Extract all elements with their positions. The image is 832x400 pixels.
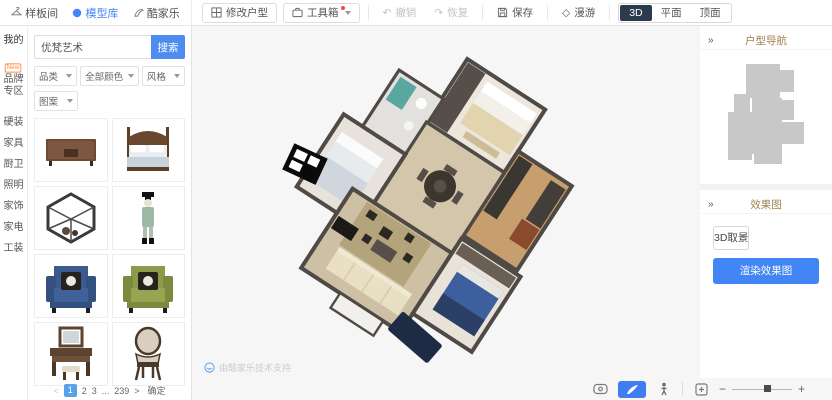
rail-item-appliances[interactable]: 家电 [2, 222, 26, 234]
product-tile-bed[interactable] [112, 118, 186, 182]
floorplan-nav-card: » 户型导航 [700, 26, 832, 184]
page-button-2[interactable]: 2 [82, 386, 87, 396]
brush-mode-button[interactable] [618, 381, 646, 398]
pagination: < 1 2 3 ... 239 > 确定 [28, 384, 191, 397]
guide-button[interactable] [590, 381, 610, 397]
tab-kujiale[interactable]: 酷家乐 [133, 5, 180, 21]
rail-item-commercial[interactable]: 工装 [2, 243, 26, 255]
brush-icon [626, 384, 639, 395]
tab-label: 酷家乐 [147, 5, 180, 21]
toolbox-new-badge [341, 6, 345, 10]
render-image-button[interactable]: 渲染效果图 [713, 258, 819, 284]
minimap-room [754, 154, 782, 164]
minimap-room [746, 64, 780, 98]
pattern-filter-select[interactable]: 图案 [34, 91, 78, 111]
undo-icon: ↶ [383, 7, 392, 19]
tab-label: 样板间 [25, 5, 58, 21]
bird-icon [133, 7, 144, 18]
floorplan-grid-icon [211, 7, 222, 18]
four-poster-bed-image [117, 123, 179, 177]
view-mode-label: 3D [629, 7, 642, 19]
upholstered-chair-image [128, 326, 168, 382]
filter-label: 图案 [39, 94, 58, 108]
next-page-button[interactable]: > [134, 386, 139, 396]
rail-item-home-decor[interactable]: 家饰 [2, 201, 26, 213]
tv-cabinet-image [40, 125, 102, 175]
style-filter-select[interactable]: 风格 [142, 66, 185, 86]
view-mode-label: 顶面 [700, 5, 721, 20]
tab-sample-rooms[interactable]: 样板间 [11, 5, 58, 21]
roam-diamond-icon: ◇ [562, 7, 570, 19]
render-card: » 效果图 3D取景 渲染效果图 [700, 190, 832, 378]
roam-button[interactable]: ◇ 漫游 [556, 3, 601, 23]
view-mode-plan[interactable]: 平面 [652, 5, 691, 21]
toolbox-icon [292, 7, 303, 18]
chevron-down-icon [345, 11, 351, 15]
redo-icon: ↷ [434, 7, 443, 19]
color-filter-select[interactable]: 全部颜色 [80, 66, 139, 86]
floorplan-nav-header: » 户型导航 [700, 32, 832, 50]
filter-row-1: 品类 全部颜色 风格 [34, 66, 185, 86]
kujiale-smiley-icon [204, 362, 215, 373]
tab-model-library[interactable]: 模型库 [72, 5, 118, 21]
product-tile-green-armchair[interactable] [112, 254, 186, 318]
canvas-bottom-toolbar: − + [586, 378, 832, 400]
dressing-table-image [42, 326, 100, 382]
page-confirm-button[interactable]: 确定 [148, 384, 166, 397]
floorplan-nav-title: 户型导航 [745, 35, 787, 47]
floorplan-minimap[interactable] [716, 60, 816, 172]
watermark-text: 由酷家乐技术支持 [219, 361, 291, 374]
minimap-room [728, 112, 752, 160]
filter-label: 品类 [39, 69, 58, 83]
save-label: 保存 [512, 5, 533, 20]
toolbar-divider [609, 5, 610, 20]
collapse-icon[interactable]: » [708, 32, 713, 50]
prev-page-button[interactable]: < [53, 386, 58, 396]
green-armchair-image [119, 258, 177, 314]
render-title: 效果图 [750, 199, 782, 211]
filter-label: 全部颜色 [85, 69, 123, 83]
page-button-last[interactable]: 239 [114, 386, 129, 396]
toolbar-divider [368, 5, 369, 20]
minimap-room [776, 122, 804, 144]
product-tile-upholstered-chair[interactable] [112, 322, 186, 386]
3d-capture-button[interactable]: 3D取景 [713, 226, 749, 250]
product-tile-blue-armchair[interactable] [34, 254, 108, 318]
page-button-1[interactable]: 1 [64, 384, 77, 397]
top-bar: 样板间 模型库 酷家乐 修改户型 工具箱 ↶ 撤销 ↷ 恢复 [0, 0, 832, 26]
view-mode-ceiling[interactable]: 顶面 [691, 5, 730, 21]
frame-plus-icon [695, 383, 708, 396]
guide-icon [593, 383, 608, 395]
product-grid [34, 118, 185, 386]
design-canvas[interactable]: 由酷家乐技术支持 [192, 26, 700, 400]
model-library-panel: 搜索 品类 全部颜色 风格 图案 [28, 26, 192, 400]
rail-item-label: 品牌专区 [4, 74, 24, 97]
frame-capture-button[interactable] [691, 381, 711, 397]
chevron-down-icon [128, 74, 134, 78]
chevron-down-icon [67, 99, 73, 103]
tab-label: 模型库 [85, 5, 118, 21]
rail-item-hard-decor[interactable]: 硬装 [2, 117, 26, 129]
floorplan-3d-view [192, 26, 700, 400]
top-tabs: 样板间 模型库 酷家乐 [0, 0, 192, 25]
hanger-icon [11, 7, 22, 18]
minimap-room [782, 100, 794, 120]
view-mode-3d[interactable]: 3D [620, 5, 651, 21]
render-header: » 效果图 [700, 196, 832, 214]
person-icon [659, 382, 669, 396]
zoom-slider-handle[interactable] [764, 385, 771, 392]
view-mode-switch: 3D 平面 顶面 [618, 3, 731, 23]
new-badge: New [5, 63, 22, 72]
toolbar-divider [547, 5, 548, 20]
blue-armchair-image [42, 258, 100, 314]
toolbox-label: 工具箱 [307, 5, 339, 20]
zoom-control: − + [719, 383, 805, 395]
toolbox-button[interactable]: 工具箱 [283, 3, 360, 23]
zoom-slider[interactable] [732, 384, 792, 394]
category-filter-select[interactable]: 品类 [34, 66, 77, 86]
rail-item-brand-zone[interactable]: New 品牌专区 [2, 61, 26, 98]
right-panel: » 户型导航 » 效果图 3D取景 渲染效果图 [700, 26, 832, 378]
minimap-room [734, 94, 750, 112]
product-tile-figurine[interactable] [112, 186, 186, 250]
undo-label: 撤销 [395, 5, 416, 20]
sphere-icon [72, 8, 82, 18]
product-tile-geometric-shelf[interactable] [34, 186, 108, 250]
figurine-image [133, 190, 163, 246]
chevron-down-icon [66, 74, 72, 78]
search-input[interactable] [34, 35, 151, 59]
walk-mode-button[interactable] [654, 381, 674, 397]
minimap-room [780, 70, 794, 92]
search-button[interactable]: 搜索 [151, 35, 185, 59]
zoom-slider-track [732, 389, 792, 390]
filter-label: 风格 [147, 69, 166, 83]
view-mode-label: 平面 [661, 5, 682, 20]
page-ellipsis: ... [102, 386, 110, 396]
roam-label: 漫游 [574, 5, 595, 20]
powered-by-watermark: 由酷家乐技术支持 [204, 361, 291, 374]
collapse-icon[interactable]: » [708, 196, 713, 214]
undo-button[interactable]: ↶ 撤销 [377, 3, 423, 23]
modify-floorplan-button[interactable]: 修改户型 [202, 3, 277, 23]
modify-floorplan-label: 修改户型 [226, 5, 268, 20]
product-tile-dressing-table[interactable] [34, 322, 108, 386]
redo-button[interactable]: ↷ 恢复 [428, 3, 474, 23]
main-toolbar: 修改户型 工具箱 ↶ 撤销 ↷ 恢复 保存 ◇ 漫游 3D 平面 [192, 3, 832, 23]
rail-item-lighting[interactable]: 照明 [2, 180, 26, 192]
redo-label: 恢复 [447, 5, 468, 20]
product-tile-tv-cabinet[interactable] [34, 118, 108, 182]
category-rail: 我的 New 品牌专区 硬装 家具 厨卫 照明 家饰 家电 工装 [0, 26, 28, 400]
toolbar-divider [682, 382, 683, 396]
zoom-in-button[interactable]: + [798, 383, 805, 395]
rail-item-mine[interactable]: 我的 [2, 35, 26, 47]
save-button[interactable]: 保存 [491, 3, 539, 23]
save-icon [497, 7, 508, 18]
chevron-down-icon [174, 74, 180, 78]
geometric-shelf-image [42, 191, 100, 245]
toolbar-divider [482, 5, 483, 20]
rail-item-furniture[interactable]: 家具 [2, 138, 26, 150]
filter-row-2: 图案 [34, 91, 185, 111]
search-bar: 搜索 [34, 35, 185, 59]
zoom-out-button[interactable]: − [719, 383, 726, 395]
rail-item-kitchen-bath[interactable]: 厨卫 [2, 159, 26, 171]
page-button-3[interactable]: 3 [92, 386, 97, 396]
